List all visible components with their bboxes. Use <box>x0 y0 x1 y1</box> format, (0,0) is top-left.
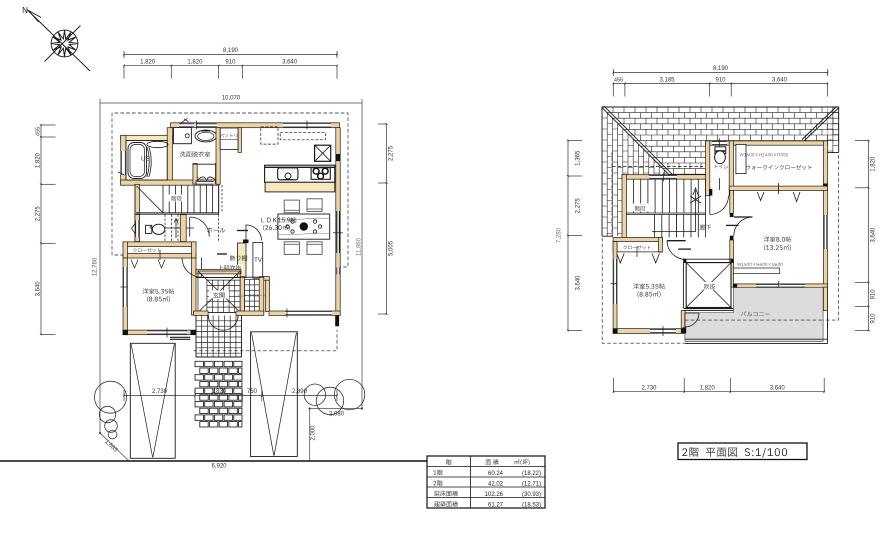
svg-text:(18.22): (18.22) <box>522 471 541 477</box>
svg-text:8,190: 8,190 <box>223 48 239 54</box>
svg-text:(18.53): (18.53) <box>522 502 541 508</box>
svg-text:8,190: 8,190 <box>713 66 729 72</box>
svg-text:3,640: 3,640 <box>770 385 786 391</box>
svg-text:UB: UB <box>141 156 150 163</box>
svg-text:102.26: 102.26 <box>485 492 504 498</box>
svg-text:3,640: 3,640 <box>576 275 582 291</box>
svg-text:1,820: 1,820 <box>140 60 156 66</box>
svg-text:2,275: 2,275 <box>36 206 42 222</box>
svg-text:455: 455 <box>36 127 42 136</box>
svg-text:7,280: 7,280 <box>557 227 563 243</box>
svg-text:(30.93): (30.93) <box>522 492 541 498</box>
svg-text:1,820: 1,820 <box>700 385 716 391</box>
svg-text:5,005: 5,005 <box>389 240 395 256</box>
svg-text:2,275: 2,275 <box>576 198 582 214</box>
svg-text:1,365: 1,365 <box>576 150 582 166</box>
svg-text:60.24: 60.24 <box>488 471 504 477</box>
svg-text:12,760: 12,760 <box>93 257 99 276</box>
svg-text:910: 910 <box>871 313 877 324</box>
svg-text:3,640: 3,640 <box>871 227 877 243</box>
svg-text:910: 910 <box>715 77 726 83</box>
svg-text:1,820: 1,820 <box>871 156 877 172</box>
svg-text:6,920: 6,920 <box>211 464 227 470</box>
svg-text:TV: TV <box>254 258 262 264</box>
svg-text:2,000: 2,000 <box>311 425 317 441</box>
svg-text:910: 910 <box>225 60 236 66</box>
svg-text:3,640: 3,640 <box>36 281 42 297</box>
svg-text:750: 750 <box>247 389 258 395</box>
svg-text:10,070: 10,070 <box>222 96 241 102</box>
svg-text:N: N <box>22 6 28 15</box>
svg-text:1,820: 1,820 <box>187 60 203 66</box>
svg-text:910: 910 <box>871 289 877 300</box>
svg-text:3,640: 3,640 <box>772 77 788 83</box>
svg-text:42.02: 42.02 <box>488 481 504 487</box>
svg-text:3,640: 3,640 <box>282 60 298 66</box>
svg-text:2,730: 2,730 <box>641 385 657 391</box>
svg-text:2,275: 2,275 <box>389 145 395 161</box>
svg-text:(12.71): (12.71) <box>522 481 541 487</box>
svg-text:61.27: 61.27 <box>488 502 504 508</box>
svg-text:455: 455 <box>614 77 623 83</box>
svg-text:1,820: 1,820 <box>36 152 42 168</box>
svg-text:3,185: 3,185 <box>659 77 675 83</box>
